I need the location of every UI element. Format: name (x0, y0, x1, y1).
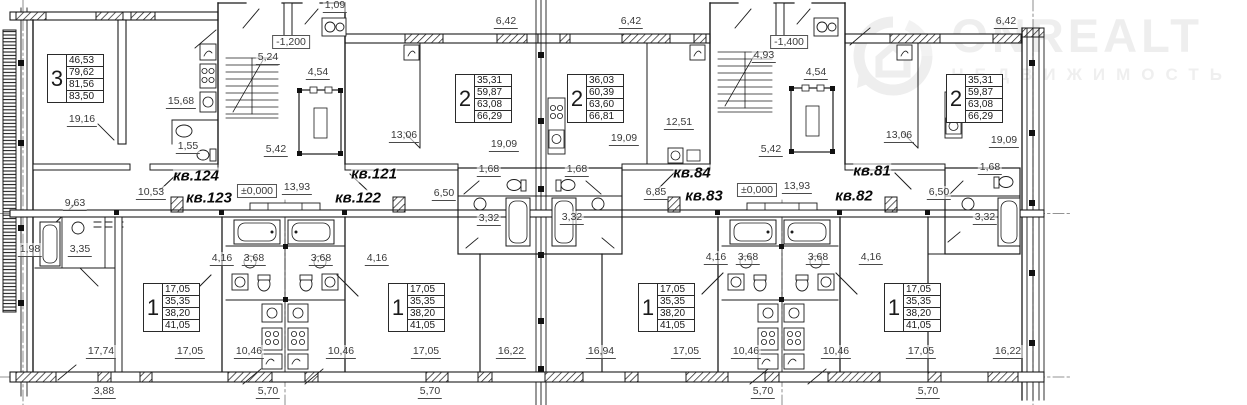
apartment-label: кв.122 (335, 190, 381, 207)
dimension-label: 3,35 (68, 243, 92, 257)
dimension-label: 10,46 (731, 345, 761, 359)
dimension-label: 3,32 (477, 212, 501, 226)
dimension-label: 9,63 (63, 197, 87, 211)
dimension-label: 16,22 (496, 345, 526, 359)
apartment-label: кв.121 (351, 166, 397, 183)
dimension-label: 1,68 (565, 163, 589, 177)
dimension-label: 6,42 (619, 15, 643, 29)
dimension-label: 6,50 (432, 187, 456, 201)
dimension-label: 13,06 (884, 129, 914, 143)
dimension-label: 17,05 (175, 345, 205, 359)
dimension-label: 6,85 (644, 186, 668, 200)
apartment-label: кв.82 (835, 188, 873, 205)
dimension-label: 3,32 (560, 211, 584, 225)
dimension-label: 17,74 (86, 345, 116, 359)
dimension-label: 1,55 (176, 140, 200, 154)
dimension-label: 17,05 (906, 345, 936, 359)
apartment-label: кв.81 (853, 163, 891, 180)
dimension-label: 1,68 (477, 163, 501, 177)
dimension-label: 3,32 (973, 211, 997, 225)
dimension-label: 1,68 (978, 161, 1002, 175)
dimension-label: 3,68 (309, 252, 333, 266)
dimension-label: 3,68 (736, 251, 760, 265)
labels-layer: 1,096,426,426,4219,1615,681,555,24-1,200… (0, 0, 1247, 405)
dimension-label: 3,68 (806, 251, 830, 265)
dimension-label: 19,09 (489, 138, 519, 152)
dimension-label: 19,16 (67, 113, 97, 127)
dimension-label: 4,93 (752, 49, 776, 63)
dimension-label: 5,70 (256, 385, 280, 399)
dimension-label: 19,09 (609, 132, 639, 146)
dimension-label: 4,54 (306, 66, 330, 80)
level-label: -1,200 (272, 35, 310, 49)
dimension-label: 6,42 (994, 15, 1018, 29)
dimension-label: 17,05 (411, 345, 441, 359)
dimension-label: 16,22 (993, 345, 1023, 359)
dimension-label: 4,16 (210, 252, 234, 266)
dimension-label: 10,46 (326, 345, 356, 359)
dimension-label: 10,53 (136, 186, 166, 200)
dimension-label: 13,93 (282, 181, 312, 195)
dimension-label: 3,88 (92, 385, 116, 399)
dimension-label: 13,06 (389, 129, 419, 143)
dimension-label: 15,68 (166, 95, 196, 109)
dimension-label: 6,50 (927, 186, 951, 200)
dimension-label: 13,93 (782, 180, 812, 194)
floor-plan-canvas: ONREALT НЕДВИЖИМОСТЬ (0, 0, 1247, 405)
dimension-label: 4,16 (365, 252, 389, 266)
dimension-label: 6,42 (494, 15, 518, 29)
dimension-label: 12,51 (664, 116, 694, 130)
apartment-label: кв.83 (685, 188, 723, 205)
dimension-label: 19,09 (989, 134, 1019, 148)
level-label: ±0,000 (237, 184, 277, 198)
dimension-label: 1,09 (323, 0, 347, 13)
level-label: ±0,000 (737, 183, 777, 197)
dimension-label: 5,70 (751, 385, 775, 399)
dimension-label: 10,46 (821, 345, 851, 359)
apartment-label: кв.84 (673, 165, 711, 182)
dimension-label: 5,70 (916, 385, 940, 399)
dimension-label: 4,16 (704, 251, 728, 265)
dimension-label: 5,42 (264, 143, 288, 157)
dimension-label: 1,98 (18, 243, 42, 257)
dimension-label: 10,46 (234, 345, 264, 359)
dimension-label: 16,94 (586, 345, 616, 359)
dimension-label: 3,68 (242, 252, 266, 266)
dimension-label: 5,24 (256, 51, 280, 65)
dimension-label: 4,54 (804, 66, 828, 80)
dimension-label: 4,16 (859, 251, 883, 265)
level-label: -1,400 (770, 35, 808, 49)
dimension-label: 5,70 (418, 385, 442, 399)
apartment-label: кв.124 (173, 168, 219, 185)
dimension-label: 17,05 (671, 345, 701, 359)
apartment-label: кв.123 (186, 190, 232, 207)
dimension-label: 5,42 (759, 143, 783, 157)
